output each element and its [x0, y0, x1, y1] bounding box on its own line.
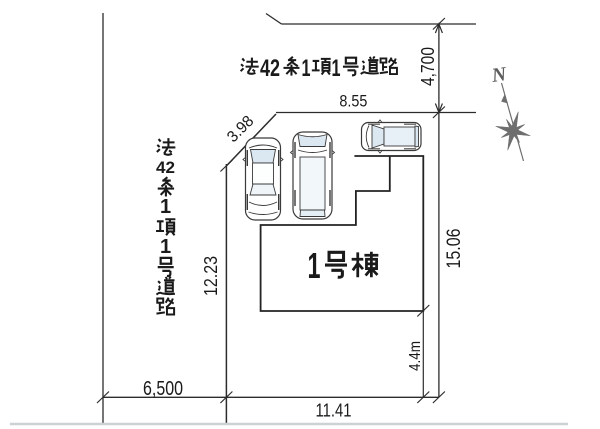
svg-text:N: N: [489, 63, 509, 87]
svg-text:8.55: 8.55: [339, 93, 367, 111]
svg-text:15.06: 15.06: [443, 229, 465, 269]
svg-text:42: 42: [260, 55, 280, 82]
svg-text:42: 42: [156, 158, 175, 177]
svg-text:12.23: 12.23: [201, 256, 221, 296]
svg-text:4,700: 4,700: [418, 47, 438, 86]
svg-text:1: 1: [160, 196, 171, 218]
svg-text:6,500: 6,500: [143, 378, 183, 400]
svg-text:1: 1: [160, 236, 171, 258]
svg-text:4.4m: 4.4m: [407, 341, 424, 371]
svg-text:11.41: 11.41: [316, 401, 352, 421]
svg-text:1: 1: [332, 55, 341, 82]
svg-text:1: 1: [302, 55, 311, 82]
svg-text:1: 1: [308, 245, 321, 286]
